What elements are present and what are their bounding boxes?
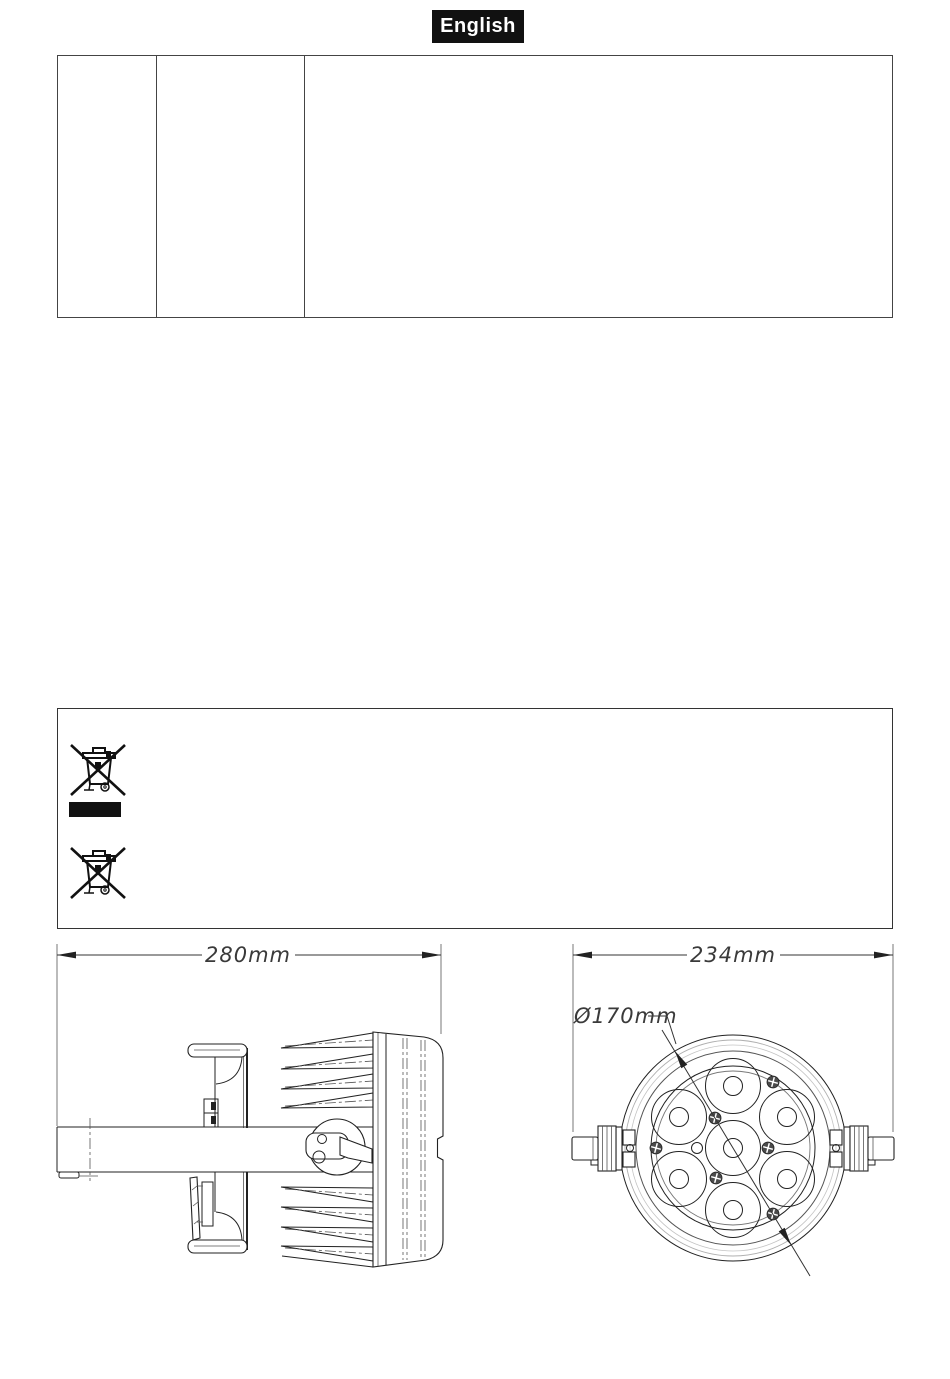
weee-notice-box [57, 708, 893, 929]
weee-crossed-out-wheelie-bin-icon [67, 838, 129, 902]
table-column-divider [156, 56, 157, 317]
front-view-drawing: 234mm [572, 942, 894, 1276]
front-barrel [373, 1032, 443, 1267]
yoke-knob-right [844, 1126, 894, 1171]
heatsink-fins-top [281, 1033, 373, 1108]
dimension-drawings: 280mm [0, 935, 950, 1305]
spec-table [57, 55, 893, 318]
side-view-drawing: 280mm [57, 942, 443, 1267]
manual-page: English [0, 0, 950, 1379]
front-view-diameter-label: Ø170mm [573, 1004, 678, 1028]
yoke-knob-left [572, 1126, 622, 1171]
front-view-width-label: 234mm [690, 943, 776, 967]
weee-crossed-out-wheelie-bin-icon [67, 735, 129, 799]
weee-black-bar [69, 802, 121, 817]
side-view-width-label: 280mm [205, 943, 291, 967]
front-small-hole [692, 1143, 703, 1154]
heatsink-fins-bottom [281, 1187, 373, 1267]
table-column-divider [304, 56, 305, 317]
language-badge: English [432, 10, 524, 43]
